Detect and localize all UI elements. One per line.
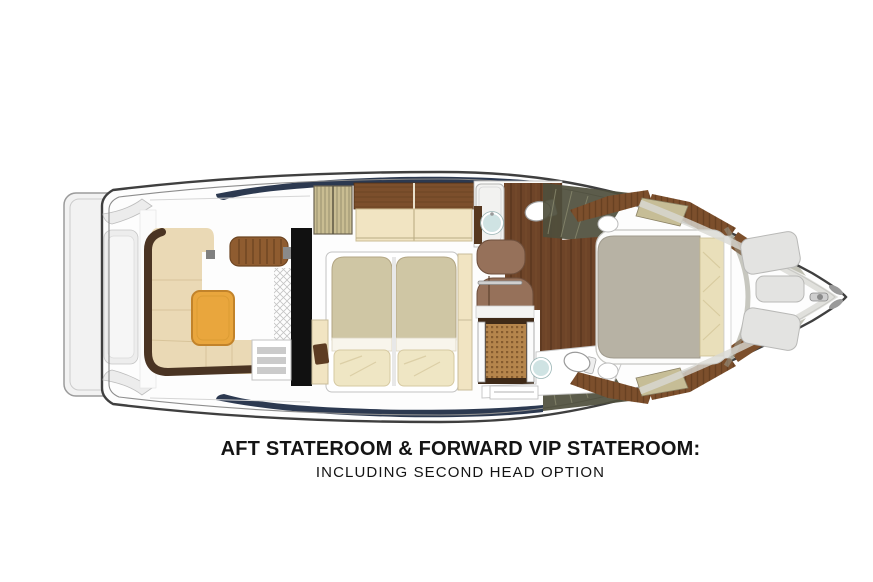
- caption-subtitle: INCLUDING SECOND HEAD OPTION: [48, 464, 873, 481]
- vip-side-table: [598, 363, 618, 379]
- wood-cabinet: [354, 183, 474, 209]
- page: AFT STATEROOM & FORWARD VIP STATEROOM: I…: [0, 0, 873, 582]
- caption-title: AFT STATEROOM & FORWARD VIP STATEROOM:: [48, 438, 873, 461]
- vip-side-table: [598, 216, 618, 232]
- louvered-locker: [314, 186, 352, 234]
- twin-beds: [326, 252, 458, 392]
- yacht-floorplan-diagram: [0, 0, 873, 582]
- vip-bed: [596, 230, 731, 364]
- cream-settee: [356, 209, 472, 241]
- shower-grate: [486, 324, 526, 378]
- cockpit-steps: [252, 340, 291, 380]
- caption: AFT STATEROOM & FORWARD VIP STATEROOM: I…: [48, 438, 873, 481]
- sink: [531, 358, 552, 379]
- sink: [481, 212, 504, 235]
- aft-stateroom: [312, 183, 474, 392]
- handrail: [478, 281, 522, 285]
- cockpit-ribbed-bench: [230, 237, 288, 266]
- cabin-door-panel: [291, 228, 312, 386]
- bench-latch: [283, 247, 291, 259]
- table-fitting: [206, 250, 215, 259]
